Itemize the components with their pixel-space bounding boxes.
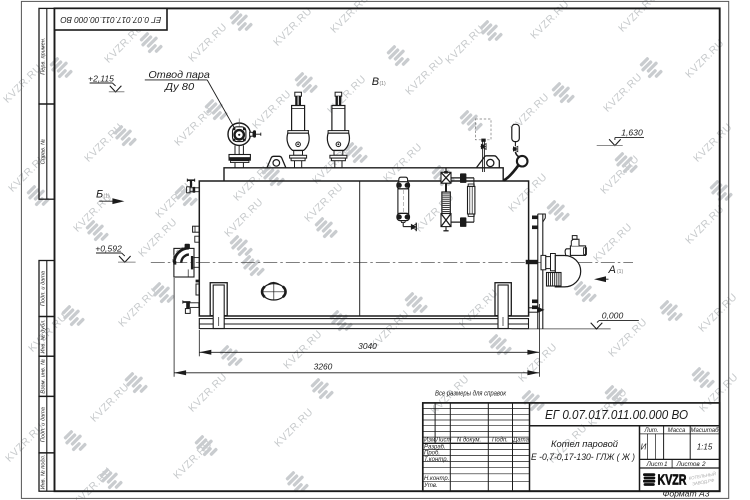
svg-text:KVZR: KVZR (658, 472, 687, 489)
svg-text:+0,592: +0,592 (95, 243, 122, 253)
svg-text:Котел паровой: Котел паровой (551, 439, 618, 449)
svg-text:0,000: 0,000 (602, 310, 624, 320)
svg-text:Перв. примен.: Перв. примен. (40, 38, 46, 75)
svg-text:Лист: Лист (646, 461, 664, 468)
svg-text:+2,115: +2,115 (88, 73, 114, 83)
svg-text:N докум.: N докум. (457, 437, 481, 443)
svg-text:1:15: 1:15 (697, 443, 713, 452)
svg-text:Инв. № подл.: Инв. № подл. (40, 455, 46, 490)
svg-text:Справ. №: Справ. № (40, 139, 46, 164)
svg-text:Масштаб: Масштаб (690, 428, 719, 434)
svg-text:2: 2 (701, 461, 706, 468)
svg-text:(1): (1) (104, 193, 110, 199)
svg-text:Подп.: Подп. (492, 437, 508, 443)
svg-text:Утв.: Утв. (423, 483, 438, 489)
svg-text:Дата: Дата (512, 437, 529, 443)
svg-text:Все размеры для справок: Все размеры для справок (435, 389, 506, 398)
svg-text:Лит.: Лит. (643, 428, 658, 434)
svg-text:Разраб.: Разраб. (424, 445, 446, 451)
svg-text:1,630: 1,630 (621, 128, 643, 138)
svg-text:(1): (1) (380, 81, 386, 87)
svg-text:И: И (641, 443, 647, 452)
svg-text:Подп. и дата: Подп. и дата (40, 407, 46, 442)
svg-text:В: В (372, 76, 379, 88)
svg-text:(1): (1) (617, 269, 623, 275)
svg-text:Б: Б (96, 188, 103, 200)
svg-text:Формат А3: Формат А3 (662, 489, 709, 499)
svg-text:Листов: Листов (676, 461, 701, 468)
svg-text:1: 1 (664, 461, 668, 468)
svg-text:Лист: Лист (435, 437, 451, 443)
svg-text:ЕГ 0.07.017.011.00.000 ВО: ЕГ 0.07.017.011.00.000 ВО (60, 15, 161, 25)
svg-text:Подп. и дата: Подп. и дата (40, 271, 46, 306)
svg-text:Т.контр.: Т.контр. (424, 457, 448, 463)
svg-text:Е -0,7-0,17-130- ГЛЖ ( Ж ): Е -0,7-0,17-130- ГЛЖ ( Ж ) (531, 452, 635, 462)
svg-text:А: А (608, 264, 616, 276)
svg-text:Отвод пара: Отвод пара (148, 70, 210, 81)
svg-text:Взам. инв. №: Взам. инв. № (40, 359, 46, 394)
svg-text:Масса: Масса (668, 428, 686, 434)
svg-text:Проб.: Проб. (424, 451, 440, 457)
svg-text:Инв. № дубл.: Инв. № дубл. (40, 319, 46, 353)
svg-text:Изм: Изм (424, 437, 435, 443)
svg-text:3040: 3040 (358, 341, 377, 351)
svg-text:Ду 80: Ду 80 (164, 82, 194, 93)
svg-text:3260: 3260 (314, 362, 333, 372)
svg-text:ЕГ 0.07.017.011.00.000 ВО: ЕГ 0.07.017.011.00.000 ВО (545, 408, 688, 422)
svg-text:Н.контр.: Н.контр. (424, 476, 449, 482)
